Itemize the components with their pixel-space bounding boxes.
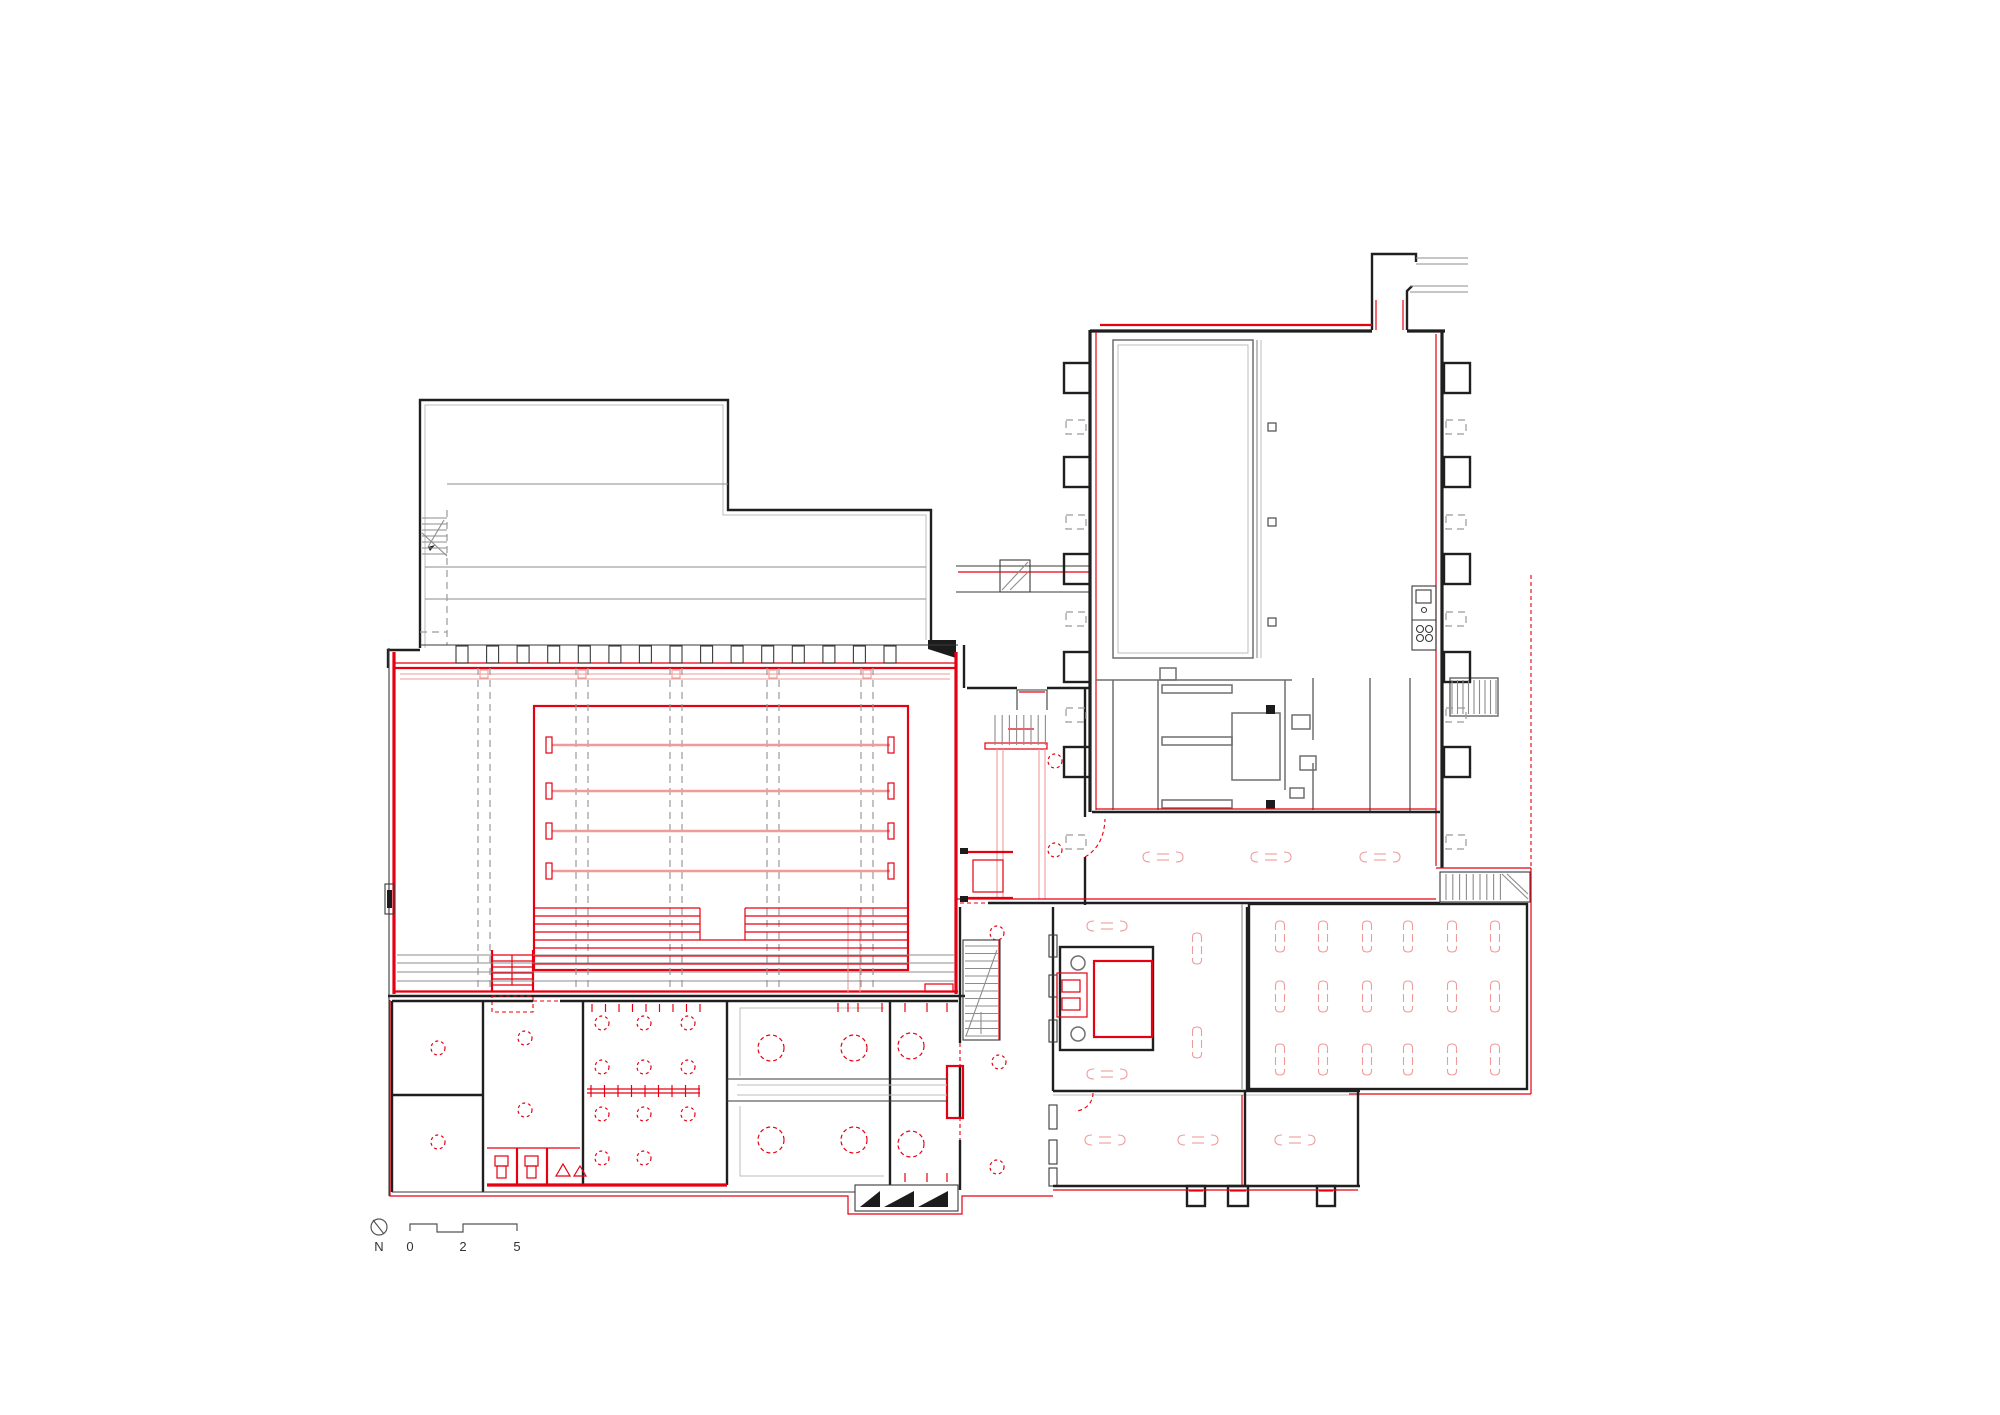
- floor-plan-page: N 0 2 5: [0, 0, 2000, 1415]
- sauna-section: [1049, 907, 1247, 1091]
- scale-label-2: 2: [459, 1239, 466, 1254]
- north-label: N: [374, 1239, 383, 1254]
- north-arrow-icon: [371, 1219, 387, 1235]
- kitchen: [1412, 586, 1436, 650]
- changing-rooms: [1096, 668, 1410, 812]
- scale-bar: [410, 1224, 517, 1232]
- scale-label-0: 0: [406, 1239, 413, 1254]
- scale-label-5: 5: [513, 1239, 520, 1254]
- dormitory-room: [1242, 904, 1531, 1094]
- floor-plan-drawing: N 0 2 5: [0, 0, 2000, 1415]
- corner-wall: [928, 640, 956, 658]
- site-boundary-red: [390, 1000, 1053, 1214]
- scale-and-north: N 0 2 5: [371, 1219, 521, 1254]
- right-building: [1090, 254, 1531, 1094]
- repeated-symbols: [397, 363, 1500, 1182]
- upper-stair: [422, 520, 447, 556]
- bottom-right-wing: [1049, 1091, 1360, 1206]
- upper-left-building: [388, 400, 956, 668]
- east-stair: [1440, 872, 1530, 902]
- bottom-band: [390, 1000, 1053, 1214]
- lower-stair: [963, 940, 1000, 1040]
- pool-hall: [385, 645, 965, 1196]
- lift: [960, 848, 1013, 902]
- door-swing: [1075, 1093, 1093, 1111]
- exterior-steps: [855, 1185, 958, 1211]
- sauna-cabin: [1094, 961, 1152, 1037]
- inner-hall: [1113, 340, 1253, 658]
